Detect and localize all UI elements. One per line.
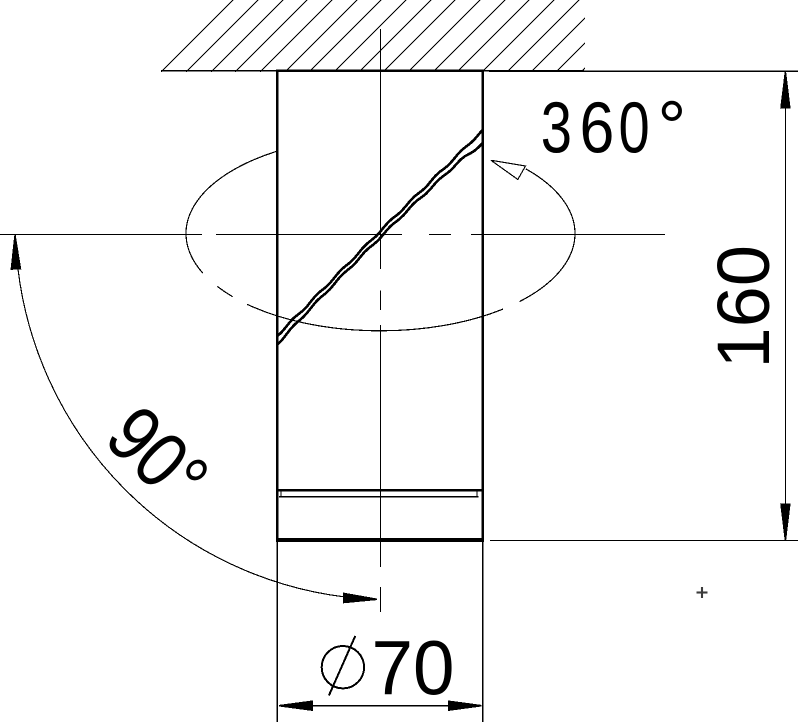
svg-text:0: 0 bbox=[619, 88, 650, 168]
svg-text:°: ° bbox=[658, 87, 687, 167]
svg-text:70: 70 bbox=[372, 625, 455, 711]
svg-text:160: 160 bbox=[702, 245, 785, 369]
svg-text:3: 3 bbox=[541, 88, 572, 168]
svg-text:6: 6 bbox=[580, 88, 615, 168]
